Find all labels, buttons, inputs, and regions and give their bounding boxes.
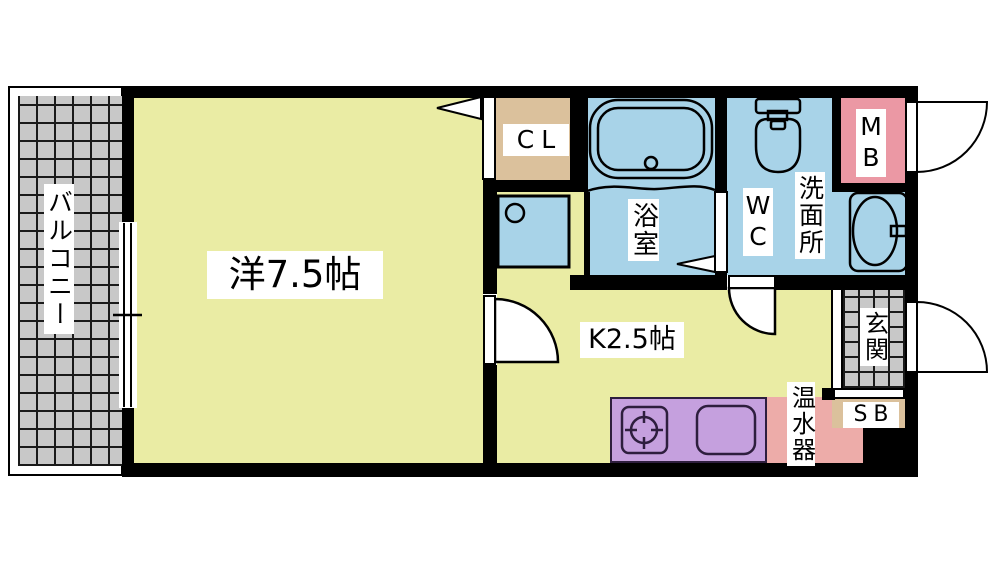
washbasin-counter	[850, 193, 907, 271]
washroom-door-leaf	[729, 276, 775, 288]
toilet-seat-hinge	[771, 121, 785, 129]
shoe-box-label: SB	[843, 402, 899, 428]
washroom-label: 洗面所	[795, 172, 825, 259]
wc-label: WC	[743, 188, 773, 256]
closet-label: CL	[503, 124, 569, 156]
entrance-door-leaf	[906, 302, 917, 372]
bathtub-drain	[645, 157, 657, 169]
washroom-door-arc	[729, 288, 775, 334]
toilet-bowl	[756, 119, 800, 172]
meter-door-arc	[917, 102, 987, 172]
bathroom-label: 浴室	[628, 199, 659, 261]
balcony-label: バルコニー	[44, 184, 74, 334]
room-door-leaf	[484, 296, 495, 364]
closet-door-triangle	[437, 97, 481, 119]
meter-box-label: MB	[856, 109, 886, 177]
washbasin-tap	[891, 226, 906, 236]
bathroom-door-triangle	[677, 256, 715, 272]
western-room-label: 洋7.5帖	[207, 251, 383, 299]
closet-door-leaf	[483, 97, 495, 179]
stove-burner-ticks	[625, 411, 663, 449]
water-heater-label: 温水器	[787, 382, 815, 466]
kitchen-sink	[697, 406, 755, 454]
room-door-arc	[495, 299, 558, 362]
floor-plan: バルコニー 洋7.5帖 CL K2.5帖 浴室 WC 洗面所 MB 玄関 SB …	[0, 0, 1000, 562]
fixtures-overlay	[0, 0, 1000, 562]
bathtub-edge-wave	[587, 186, 715, 191]
entrance-label: 玄関	[860, 308, 888, 366]
kitchen-label: K2.5帖	[580, 322, 684, 358]
bathtub-inner	[598, 108, 704, 170]
entrance-door-arc	[917, 302, 987, 372]
meter-door-leaf	[906, 102, 917, 172]
bathroom-door-leaf	[715, 192, 727, 272]
